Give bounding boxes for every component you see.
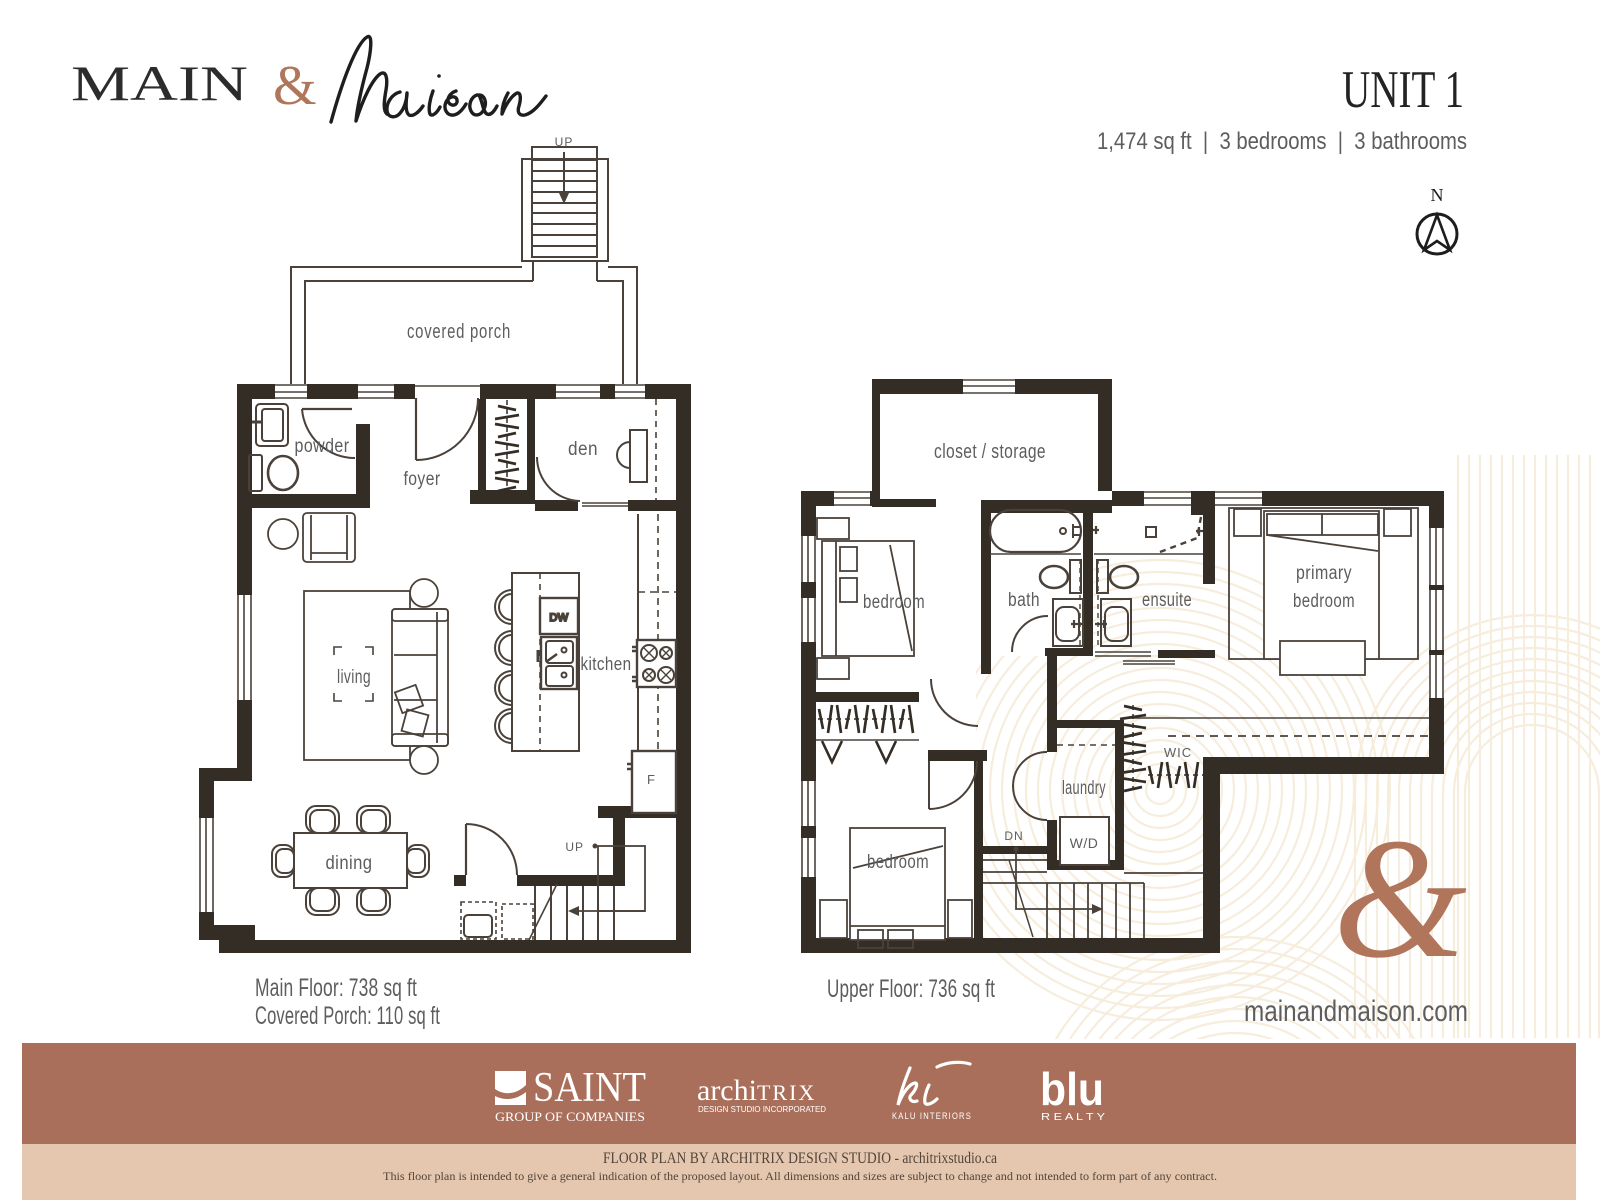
- svg-text:primary: primary: [1296, 563, 1352, 584]
- svg-text:KALU INTERIORS: KALU INTERIORS: [892, 1111, 972, 1122]
- svg-text:bedroom: bedroom: [1293, 591, 1355, 612]
- svg-text:den: den: [568, 439, 598, 460]
- svg-text:Main Floor: 738 sq ft: Main Floor: 738 sq ft: [255, 974, 417, 1002]
- svg-text:ensuite: ensuite: [1142, 590, 1192, 611]
- svg-text:bedroom: bedroom: [867, 852, 929, 873]
- svg-text:SAINT: SAINT: [533, 1065, 646, 1111]
- svg-text:F: F: [647, 772, 655, 787]
- svg-text:Upper Floor: 736 sq ft: Upper Floor: 736 sq ft: [827, 975, 995, 1003]
- svg-text:DN: DN: [1004, 829, 1023, 843]
- svg-text:blu: blu: [1040, 1063, 1104, 1115]
- svg-text:living: living: [337, 667, 371, 688]
- svg-text:UNIT 1: UNIT 1: [1342, 61, 1464, 119]
- svg-text:R E A L T Y: R E A L T Y: [1041, 1112, 1105, 1123]
- svg-text:N: N: [1431, 185, 1444, 205]
- svg-text:laundry: laundry: [1062, 778, 1106, 799]
- svg-text:1,474 sq ft | 3 bedrooms |: 1,474 sq ft | 3 bedrooms | 3 bathrooms: [1097, 128, 1467, 155]
- svg-text:This floor plan is intended to: This floor plan is intended to give a ge…: [383, 1169, 1217, 1183]
- svg-text:bath: bath: [1008, 590, 1040, 611]
- svg-text:covered porch: covered porch: [407, 321, 511, 343]
- svg-text:MAIN: MAIN: [71, 55, 248, 111]
- svg-text:&: &: [273, 55, 317, 117]
- svg-text:mainandmaison.com: mainandmaison.com: [1244, 995, 1468, 1028]
- svg-text:UP: UP: [565, 840, 584, 854]
- svg-text:powder: powder: [295, 436, 350, 457]
- svg-text:foyer: foyer: [404, 469, 441, 490]
- svg-text:W/D: W/D: [1070, 835, 1099, 851]
- svg-text:Covered Porch: 110 sq ft: Covered Porch: 110 sq ft: [255, 1002, 440, 1030]
- svg-text:GROUP OF COMPANIES: GROUP OF COMPANIES: [495, 1110, 645, 1124]
- svg-text:FLOOR PLAN BY ARCHITRIX DESIGN: FLOOR PLAN BY ARCHITRIX DESIGN STUDIO - …: [603, 1150, 997, 1167]
- svg-text:DW: DW: [549, 612, 568, 624]
- svg-text:kitchen: kitchen: [581, 654, 632, 674]
- svg-text:dining: dining: [326, 853, 373, 874]
- svg-text:bedroom: bedroom: [863, 592, 925, 613]
- svg-text:&: &: [1333, 804, 1467, 994]
- svg-text:DESIGN STUDIO INCORPORATED: DESIGN STUDIO INCORPORATED: [698, 1105, 826, 1114]
- svg-text:closet / storage: closet / storage: [934, 441, 1046, 463]
- svg-text:UP: UP: [555, 135, 574, 149]
- svg-text:WIC: WIC: [1164, 745, 1192, 760]
